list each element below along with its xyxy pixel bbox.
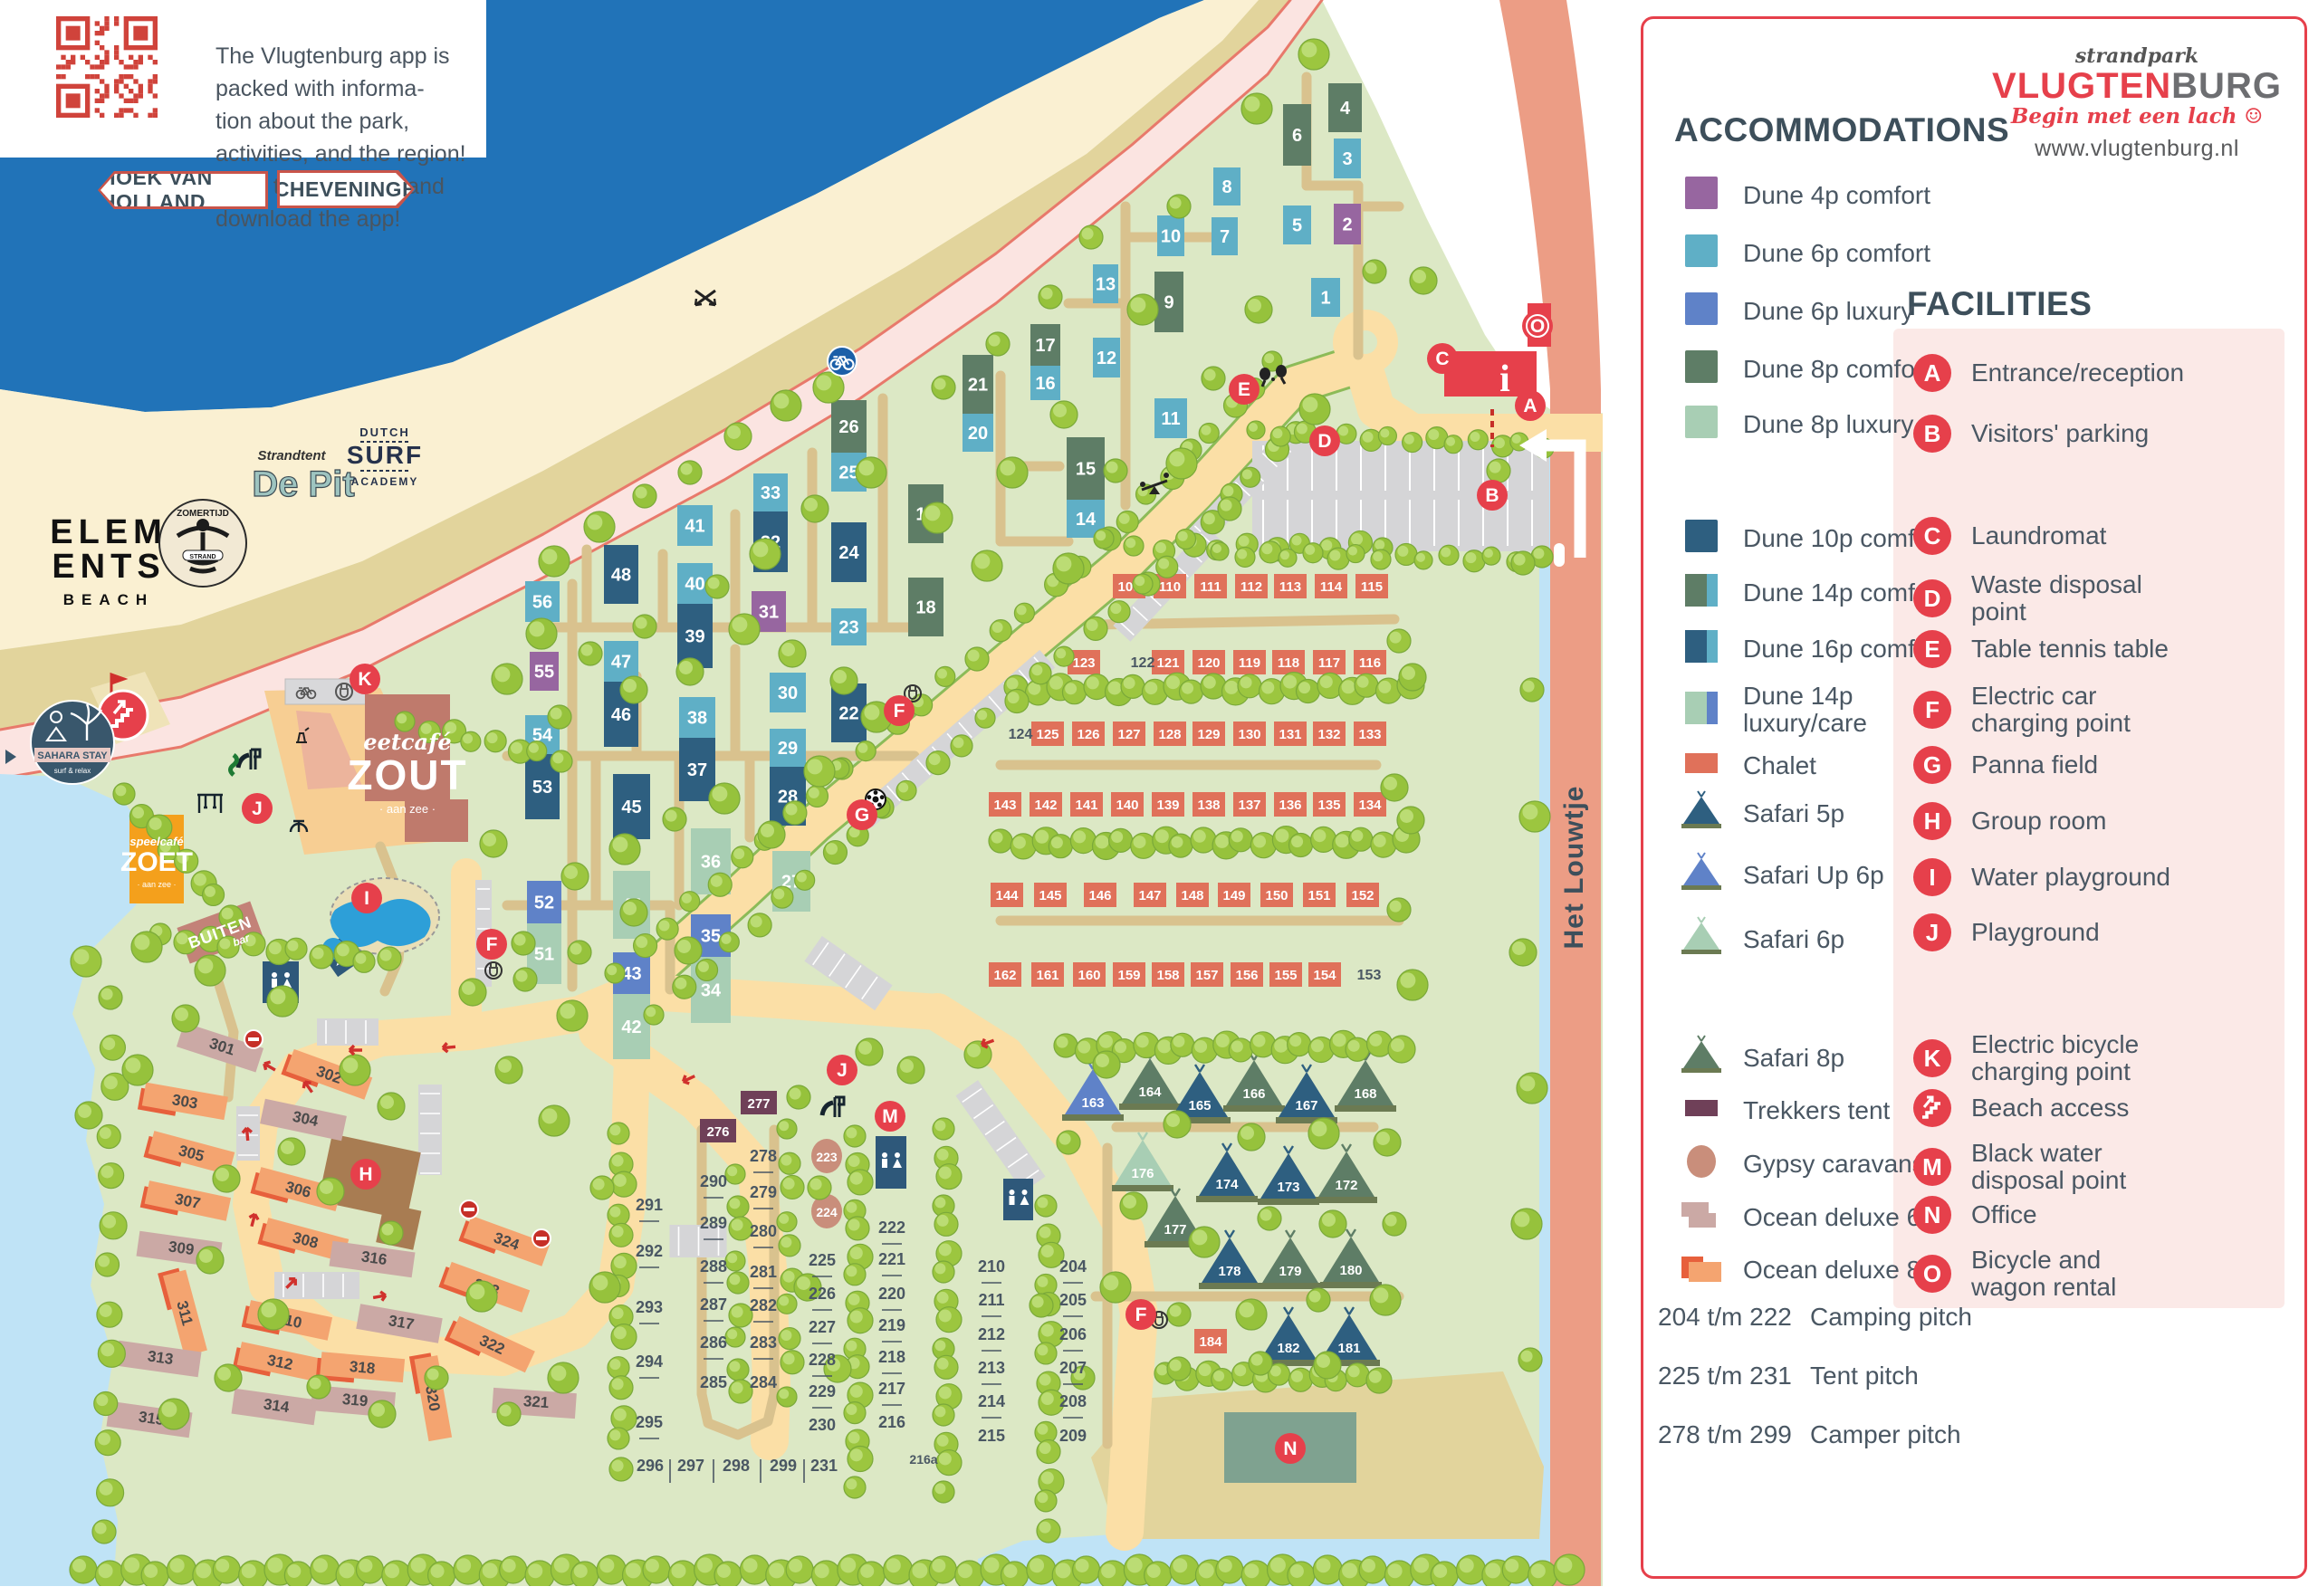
svg-text:37: 37 bbox=[687, 760, 707, 780]
marker-F: F bbox=[884, 695, 915, 726]
svg-text:204: 204 bbox=[1059, 1257, 1087, 1276]
svg-text:222: 222 bbox=[878, 1219, 905, 1237]
legend-acc-chalet: Chalet bbox=[1680, 741, 1816, 789]
legend-acc-label: Ocean deluxe 6p bbox=[1743, 1204, 1935, 1231]
chalet-143: 143 bbox=[989, 792, 1021, 817]
legend-swatch bbox=[1680, 1193, 1723, 1241]
svg-text:210: 210 bbox=[978, 1257, 1005, 1276]
legend-acc-dune-6p-comfort: Dune 6p comfort bbox=[1680, 229, 1930, 277]
svg-text:29: 29 bbox=[778, 739, 798, 759]
chalet-120: 120 bbox=[1193, 650, 1225, 674]
legend-acc-label: Safari 5p bbox=[1743, 800, 1844, 827]
building-6: 6 bbox=[1283, 104, 1311, 166]
facility-badge-H: H bbox=[1911, 800, 1953, 842]
svg-text:A: A bbox=[1924, 359, 1941, 387]
svg-text:158: 158 bbox=[1156, 968, 1179, 983]
qr-line-2: tion about the park, activities, and the… bbox=[216, 105, 486, 170]
legend-fac-label: Office bbox=[1971, 1201, 2037, 1228]
svg-text:293: 293 bbox=[636, 1298, 663, 1316]
svg-text:215: 215 bbox=[978, 1427, 1005, 1445]
svg-text:H: H bbox=[1924, 808, 1941, 835]
facility-badge-M: M bbox=[1911, 1146, 1953, 1188]
brand-name-red: VLUGTEN bbox=[1992, 66, 2171, 106]
svg-text:216: 216 bbox=[878, 1413, 905, 1431]
legend-acc-label: Safari Up 6p bbox=[1743, 862, 1884, 889]
svg-text:6: 6 bbox=[1292, 126, 1302, 146]
chalet-144: 144 bbox=[991, 883, 1023, 907]
svg-text:207: 207 bbox=[1059, 1359, 1087, 1377]
legend-swatch bbox=[1680, 514, 1723, 562]
svg-text:J: J bbox=[837, 1060, 848, 1081]
legend-swatch bbox=[1680, 171, 1723, 219]
chalet-148: 148 bbox=[1176, 883, 1209, 907]
svg-text:surf & relax: surf & relax bbox=[54, 767, 91, 775]
legend-fac-bicycle-and: OBicycle andwagon rental bbox=[1911, 1247, 2116, 1301]
svg-text:10: 10 bbox=[1161, 227, 1181, 247]
legend-swatch bbox=[1680, 1086, 1723, 1134]
legend-acc-label: Safari 8p bbox=[1743, 1045, 1844, 1072]
legend-acc-label: Trekkers tent bbox=[1743, 1097, 1890, 1124]
svg-text:165: 165 bbox=[1188, 1098, 1211, 1113]
chalet-156: 156 bbox=[1231, 962, 1263, 987]
svg-text:130: 130 bbox=[1238, 727, 1260, 742]
legend-swatch bbox=[1680, 400, 1723, 448]
marker-A: A bbox=[1515, 390, 1546, 421]
svg-text:176: 176 bbox=[1131, 1166, 1154, 1181]
brand-name: VLUGTENBURG bbox=[1988, 68, 2286, 104]
svg-text:149: 149 bbox=[1222, 888, 1245, 903]
svg-text:· aan zee ·: · aan zee · bbox=[379, 802, 436, 816]
chalet-142: 142 bbox=[1030, 792, 1062, 817]
legend-acc-safari-up-6p: Safari Up 6p bbox=[1680, 851, 1884, 899]
svg-text:N: N bbox=[1924, 1201, 1941, 1228]
svg-text:F: F bbox=[894, 701, 905, 722]
chalet-150: 150 bbox=[1260, 883, 1293, 907]
legend-fac-label: Group room bbox=[1971, 808, 2106, 835]
marker-K: K bbox=[350, 664, 380, 694]
cycle-path-sign-icon bbox=[828, 347, 857, 376]
svg-text:137: 137 bbox=[1238, 798, 1260, 813]
svg-text:155: 155 bbox=[1274, 968, 1297, 983]
svg-text:11: 11 bbox=[1161, 409, 1180, 429]
svg-text:F: F bbox=[486, 934, 498, 955]
legend-fac-label: Bicycle andwagon rental bbox=[1971, 1247, 2116, 1301]
svg-text:15: 15 bbox=[1076, 460, 1096, 480]
svg-text:143: 143 bbox=[993, 798, 1016, 813]
svg-text:31: 31 bbox=[759, 603, 779, 623]
chalet-140: 140 bbox=[1111, 792, 1144, 817]
svg-text:136: 136 bbox=[1279, 798, 1301, 813]
svg-text:N: N bbox=[1283, 1438, 1297, 1459]
zomertijd-logo: ZOMERTIJDSTRAND bbox=[159, 500, 246, 587]
building-55: 55 bbox=[530, 652, 559, 691]
svg-text:2: 2 bbox=[1342, 215, 1352, 235]
svg-text:112: 112 bbox=[1240, 579, 1262, 595]
chalet-121: 121 bbox=[1152, 650, 1184, 674]
chalet-146: 146 bbox=[1084, 883, 1116, 907]
svg-text:174: 174 bbox=[1215, 1177, 1239, 1192]
trekkers-277: 277 bbox=[741, 1091, 777, 1114]
building-17: 17 bbox=[1030, 324, 1060, 366]
svg-text:G: G bbox=[855, 805, 869, 826]
marker-J: J bbox=[827, 1055, 857, 1085]
svg-text:21: 21 bbox=[968, 376, 988, 396]
building-47: 47 bbox=[604, 641, 638, 682]
svg-text:205: 205 bbox=[1059, 1291, 1087, 1309]
legend-fac-label: Electric bicyclecharging point bbox=[1971, 1031, 2139, 1085]
building-41: 41 bbox=[677, 505, 713, 546]
svg-text:318: 318 bbox=[349, 1358, 376, 1377]
svg-text:282: 282 bbox=[750, 1296, 777, 1314]
svg-text:228: 228 bbox=[809, 1351, 836, 1369]
toilet-building bbox=[876, 1136, 906, 1189]
building-26: 26 bbox=[831, 400, 867, 453]
svg-text:SURF: SURF bbox=[347, 441, 423, 469]
svg-text:36: 36 bbox=[701, 853, 721, 873]
facility-badge-G: G bbox=[1911, 744, 1953, 786]
svg-text:159: 159 bbox=[1117, 968, 1140, 983]
legend-fac-label: Panna field bbox=[1971, 751, 2098, 779]
svg-text:48: 48 bbox=[611, 566, 631, 586]
building-18: 18 bbox=[908, 578, 943, 636]
marker-M: M bbox=[875, 1101, 905, 1132]
signpost-hoek-van-holland: HOEK VAN HOLLAND bbox=[98, 171, 268, 209]
legend-swatch bbox=[1680, 851, 1723, 899]
no-entry-sign bbox=[532, 1229, 551, 1247]
chalet-162: 162 bbox=[989, 962, 1021, 987]
svg-text:F: F bbox=[1135, 1305, 1147, 1325]
building-10: 10 bbox=[1157, 215, 1184, 256]
svg-text:35: 35 bbox=[701, 927, 721, 947]
svg-text:291: 291 bbox=[636, 1196, 663, 1214]
svg-text:177: 177 bbox=[1164, 1222, 1186, 1238]
svg-text:117: 117 bbox=[1318, 655, 1340, 671]
chalet-184: 184 bbox=[1194, 1329, 1227, 1353]
svg-text:226: 226 bbox=[809, 1285, 836, 1303]
chalet-154: 154 bbox=[1308, 962, 1341, 987]
svg-text:ELEM: ELEM bbox=[50, 513, 168, 551]
legend-acc-label: Dune 8p luxury bbox=[1743, 411, 1913, 438]
chalet-115: 115 bbox=[1355, 574, 1388, 598]
svg-text:42: 42 bbox=[621, 1018, 641, 1037]
svg-text:286: 286 bbox=[700, 1333, 727, 1352]
svg-text:116: 116 bbox=[1359, 655, 1381, 671]
brand-url: www.vlugtenburg.nl bbox=[1988, 136, 2286, 162]
facility-badge-C: C bbox=[1911, 515, 1953, 557]
svg-text:BEACH: BEACH bbox=[63, 591, 154, 608]
svg-text:156: 156 bbox=[1235, 968, 1258, 983]
legend-acc-dune-8p-comfort: Dune 8p comfort bbox=[1680, 345, 1930, 393]
svg-text:B: B bbox=[1924, 420, 1941, 447]
svg-text:4: 4 bbox=[1340, 99, 1351, 119]
park-map: i123456789101112131415161718192021222324… bbox=[0, 0, 1630, 1596]
svg-text:148: 148 bbox=[1181, 888, 1203, 903]
svg-text:24: 24 bbox=[838, 543, 859, 563]
legend-acc-safari-5p: Safari 5p bbox=[1680, 789, 1844, 837]
legend-acc-dune-10p-comfort: Dune 10p comfort bbox=[1680, 514, 1945, 562]
svg-text:206: 206 bbox=[1059, 1325, 1087, 1343]
svg-text:279: 279 bbox=[750, 1183, 777, 1201]
legend-fac-waste-disposal: DWaste disposalpoint bbox=[1911, 571, 2142, 626]
marker-G: G bbox=[847, 799, 877, 830]
svg-text:129: 129 bbox=[1197, 727, 1220, 742]
svg-text:288: 288 bbox=[700, 1257, 727, 1276]
facility-badge-N: N bbox=[1911, 1194, 1953, 1236]
brand-tagline: Begin met een lach ☺ bbox=[1988, 104, 2286, 129]
legend-swatch bbox=[1680, 1140, 1723, 1188]
facility-badge-D: D bbox=[1911, 578, 1953, 619]
svg-text:9: 9 bbox=[1164, 293, 1173, 313]
svg-text:33: 33 bbox=[761, 483, 781, 503]
building-3: 3 bbox=[1334, 139, 1361, 178]
sign-label: HOEK VAN HOLLAND bbox=[101, 174, 265, 206]
building-24: 24 bbox=[831, 522, 867, 582]
svg-text:ACADEMY: ACADEMY bbox=[351, 475, 419, 488]
svg-text:47: 47 bbox=[611, 653, 631, 673]
svg-text:De Pit: De Pit bbox=[252, 464, 354, 504]
legend-fac-label: Laundromat bbox=[1971, 522, 2106, 550]
legend-acc-safari-8p: Safari 8p bbox=[1680, 1034, 1844, 1082]
marker-H: H bbox=[350, 1159, 381, 1190]
svg-text:208: 208 bbox=[1059, 1392, 1087, 1410]
building-11: 11 bbox=[1154, 398, 1187, 438]
building-42: 42 bbox=[613, 994, 650, 1059]
sign-label: SCHEVENINGEN bbox=[280, 173, 412, 205]
chalet-133: 133 bbox=[1354, 722, 1386, 746]
building-8: 8 bbox=[1213, 167, 1240, 205]
svg-text:276: 276 bbox=[706, 1124, 729, 1140]
svg-text:172: 172 bbox=[1335, 1178, 1357, 1193]
svg-text:1: 1 bbox=[1320, 289, 1330, 309]
svg-text:131: 131 bbox=[1279, 727, 1301, 742]
svg-text:Strandtent: Strandtent bbox=[258, 448, 327, 464]
svg-text:ZOET: ZOET bbox=[120, 847, 193, 877]
legend-swatch bbox=[1680, 345, 1723, 393]
svg-text:163: 163 bbox=[1081, 1095, 1104, 1111]
svg-text:124: 124 bbox=[1009, 727, 1033, 742]
svg-text:142: 142 bbox=[1034, 798, 1057, 813]
chalet-161: 161 bbox=[1031, 962, 1064, 987]
svg-text:18: 18 bbox=[915, 598, 935, 618]
chalet-151: 151 bbox=[1303, 883, 1336, 907]
gypsy-223: 223 bbox=[811, 1139, 842, 1173]
facility-badge-F: F bbox=[1911, 689, 1953, 731]
legend-fac-group-room: HGroup room bbox=[1911, 800, 2106, 842]
legend-pitch-camping-pitch: 204 t/m 222Camping pitch bbox=[1658, 1303, 1972, 1332]
building-12: 12 bbox=[1093, 338, 1120, 377]
building-5: 5 bbox=[1283, 205, 1311, 244]
legend-fac-label: Table tennis table bbox=[1971, 636, 2169, 663]
svg-text:216a: 216a bbox=[909, 1452, 937, 1467]
legend-fac-office: NOffice bbox=[1911, 1194, 2037, 1236]
svg-text:E: E bbox=[1238, 379, 1250, 400]
legend-acc-dune-14p: Dune 14pluxury/care bbox=[1680, 683, 1867, 737]
marker-O: O bbox=[1522, 311, 1553, 341]
pitch-label: Camper pitch bbox=[1810, 1420, 1961, 1448]
legend-fac-electric-car: FElectric carcharging point bbox=[1911, 683, 2131, 737]
building-7: 7 bbox=[1212, 217, 1238, 255]
legend-pitch-tent-pitch: 225 t/m 231Tent pitch bbox=[1658, 1362, 1919, 1391]
svg-text:284: 284 bbox=[750, 1373, 777, 1391]
svg-text:34: 34 bbox=[701, 981, 722, 1001]
svg-text:Het Louwtje: Het Louwtje bbox=[1559, 786, 1589, 950]
legend-acc-ocean-deluxe-8p: Ocean deluxe 8p bbox=[1680, 1246, 1935, 1294]
svg-text:299: 299 bbox=[770, 1457, 797, 1475]
svg-text:147: 147 bbox=[1138, 888, 1161, 903]
svg-text:E: E bbox=[1924, 636, 1940, 663]
svg-text:122: 122 bbox=[1131, 655, 1155, 671]
svg-text:297: 297 bbox=[677, 1457, 704, 1475]
vlugtenburg-park-map-sheet: { "qr_panel": { "lines": ["The Vlugtenbu… bbox=[0, 0, 2318, 1596]
chalet-149: 149 bbox=[1218, 883, 1250, 907]
chalet-136: 136 bbox=[1274, 792, 1307, 817]
svg-text:20: 20 bbox=[968, 424, 988, 444]
building-56: 56 bbox=[525, 581, 560, 622]
legend-acc-dune-6p-luxury: Dune 6p luxury bbox=[1680, 287, 1913, 335]
chalet-116: 116 bbox=[1354, 650, 1386, 674]
map-root: i123456789101112131415161718192021222324… bbox=[0, 0, 1630, 1596]
chalet-152: 152 bbox=[1346, 883, 1379, 907]
svg-text:M: M bbox=[882, 1106, 898, 1127]
building-20: 20 bbox=[963, 414, 993, 452]
accommodations-title: ACCOMMODATIONS bbox=[1674, 111, 2009, 149]
legend-swatch bbox=[1680, 1034, 1723, 1082]
building-52: 52 bbox=[527, 881, 561, 923]
svg-text:K: K bbox=[358, 669, 371, 690]
chalet-157: 157 bbox=[1191, 962, 1223, 987]
svg-text:290: 290 bbox=[700, 1172, 727, 1190]
chalet-139: 139 bbox=[1152, 792, 1184, 817]
svg-text:231: 231 bbox=[810, 1457, 838, 1475]
svg-text:230: 230 bbox=[809, 1416, 836, 1434]
chalet-126: 126 bbox=[1072, 722, 1105, 746]
svg-text:C: C bbox=[1924, 522, 1941, 550]
qr-code bbox=[56, 16, 158, 118]
facility-badge-K: K bbox=[1911, 1037, 1953, 1079]
svg-text:DUTCH: DUTCH bbox=[359, 425, 410, 439]
svg-text:O: O bbox=[1530, 316, 1545, 337]
svg-text:281: 281 bbox=[750, 1263, 777, 1281]
svg-text:I: I bbox=[1929, 864, 1935, 891]
svg-text:135: 135 bbox=[1317, 798, 1340, 813]
chalet-145: 145 bbox=[1034, 883, 1067, 907]
svg-text:26: 26 bbox=[838, 417, 858, 437]
svg-text:A: A bbox=[1523, 396, 1537, 416]
qr-app-panel: The Vlugtenburg app is packed with infor… bbox=[0, 0, 486, 158]
svg-text:55: 55 bbox=[534, 663, 554, 683]
ditch bbox=[1539, 415, 1550, 1537]
svg-text:173: 173 bbox=[1277, 1180, 1299, 1195]
legend-swatch bbox=[1680, 915, 1723, 963]
facility-badge-I: I bbox=[1911, 856, 1953, 898]
legend-acc-label: Dune 8p comfort bbox=[1743, 356, 1930, 383]
building-39: 39 bbox=[677, 604, 713, 668]
legend-acc-safari-6p: Safari 6p bbox=[1680, 915, 1844, 963]
svg-text:161: 161 bbox=[1036, 968, 1058, 983]
svg-text:133: 133 bbox=[1358, 727, 1381, 742]
legend-fac-label: Waste disposalpoint bbox=[1971, 571, 2142, 626]
pitch-label: Camping pitch bbox=[1810, 1303, 1972, 1331]
svg-text:314: 314 bbox=[263, 1395, 291, 1416]
chalet-128: 128 bbox=[1154, 722, 1186, 746]
svg-text:H: H bbox=[359, 1164, 372, 1185]
svg-text:211: 211 bbox=[978, 1291, 1004, 1309]
legend-swatch bbox=[1680, 1246, 1723, 1294]
svg-text:225: 225 bbox=[809, 1251, 836, 1269]
chalet-113: 113 bbox=[1274, 574, 1307, 598]
svg-text:56: 56 bbox=[532, 593, 552, 613]
legend-fac-panna-field: GPanna field bbox=[1911, 744, 2098, 786]
legend-acc-dune-4p-comfort: Dune 4p comfort bbox=[1680, 171, 1930, 219]
legend-acc-label: Dune 4p comfort bbox=[1743, 182, 1930, 209]
svg-text:J: J bbox=[1926, 919, 1939, 946]
building-13: 13 bbox=[1093, 264, 1118, 303]
svg-text:295: 295 bbox=[636, 1413, 663, 1431]
svg-text:8: 8 bbox=[1221, 177, 1231, 197]
svg-text:229: 229 bbox=[809, 1382, 836, 1400]
svg-text:319: 319 bbox=[341, 1391, 369, 1410]
building-9: 9 bbox=[1154, 272, 1183, 332]
chalet-138: 138 bbox=[1193, 792, 1225, 817]
legend-acc-gypsy-caravans: Gypsy caravans bbox=[1680, 1140, 1925, 1188]
chalet-147: 147 bbox=[1134, 883, 1166, 907]
svg-text:168: 168 bbox=[1354, 1086, 1376, 1102]
svg-text:285: 285 bbox=[700, 1373, 727, 1391]
chalet-158: 158 bbox=[1152, 962, 1184, 987]
legend-acc-dune-8p-luxury: Dune 8p luxury bbox=[1680, 400, 1913, 448]
svg-text:160: 160 bbox=[1078, 968, 1100, 983]
svg-text:ENTS: ENTS bbox=[52, 548, 165, 586]
svg-text:· aan zee ·: · aan zee · bbox=[137, 880, 176, 889]
svg-text:128: 128 bbox=[1158, 727, 1181, 742]
svg-text:221: 221 bbox=[878, 1250, 905, 1268]
legend-fac-water-playground: IWater playground bbox=[1911, 856, 2170, 898]
svg-text:120: 120 bbox=[1197, 655, 1220, 671]
svg-text:213: 213 bbox=[978, 1359, 1005, 1377]
legend-fac-label: Entrance/reception bbox=[1971, 359, 2184, 387]
svg-text:STRAND: STRAND bbox=[189, 554, 216, 560]
svg-text:I: I bbox=[364, 888, 369, 909]
legend-fac-playground: JPlayground bbox=[1911, 912, 2100, 953]
brand-logo: strandpark VLUGTENBURG Begin met een lac… bbox=[1988, 44, 2286, 162]
no-entry-sign bbox=[460, 1200, 478, 1219]
svg-text:227: 227 bbox=[809, 1318, 836, 1336]
svg-text:3: 3 bbox=[1342, 149, 1352, 169]
svg-text:153: 153 bbox=[1357, 968, 1382, 983]
legend-fac-label: Black waterdisposal point bbox=[1971, 1140, 2126, 1194]
facility-badge-O: O bbox=[1911, 1253, 1953, 1295]
legend-swatch bbox=[1680, 789, 1723, 837]
svg-text:16: 16 bbox=[1035, 374, 1055, 394]
svg-text:289: 289 bbox=[700, 1214, 727, 1232]
legend-swatch bbox=[1680, 741, 1723, 789]
svg-text:40: 40 bbox=[685, 575, 704, 595]
svg-text:30: 30 bbox=[778, 683, 798, 703]
marker-E: E bbox=[1229, 374, 1260, 405]
svg-text:118: 118 bbox=[1278, 655, 1299, 671]
marker-J: J bbox=[242, 793, 273, 824]
svg-text:150: 150 bbox=[1265, 888, 1288, 903]
legend-swatch bbox=[1680, 625, 1723, 673]
marker-N: N bbox=[1275, 1433, 1306, 1464]
svg-text:298: 298 bbox=[723, 1457, 750, 1475]
building-1: 1 bbox=[1311, 278, 1340, 317]
marker-I: I bbox=[351, 883, 382, 913]
marker-B: B bbox=[1477, 480, 1508, 511]
svg-text:157: 157 bbox=[1195, 968, 1218, 983]
svg-text:O: O bbox=[1923, 1260, 1941, 1287]
svg-text:119: 119 bbox=[1239, 655, 1260, 671]
